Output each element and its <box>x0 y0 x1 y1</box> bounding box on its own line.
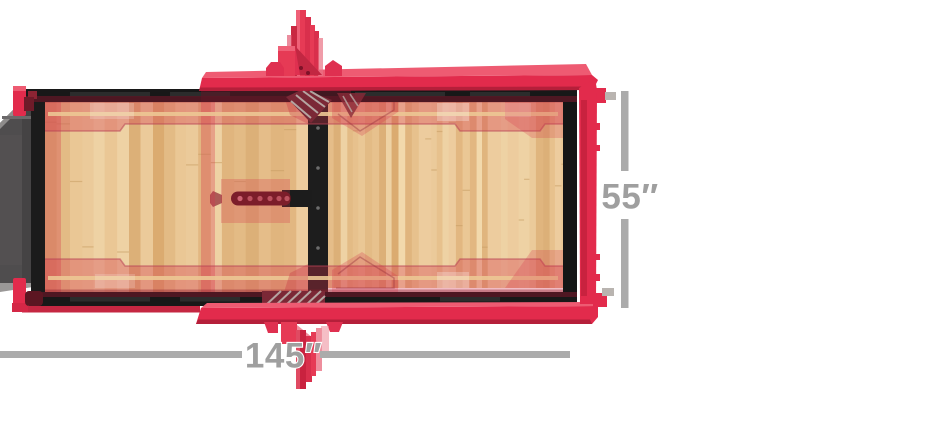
svg-text:145″: 145″ <box>245 337 322 376</box>
svg-text:55″: 55″ <box>601 178 658 217</box>
